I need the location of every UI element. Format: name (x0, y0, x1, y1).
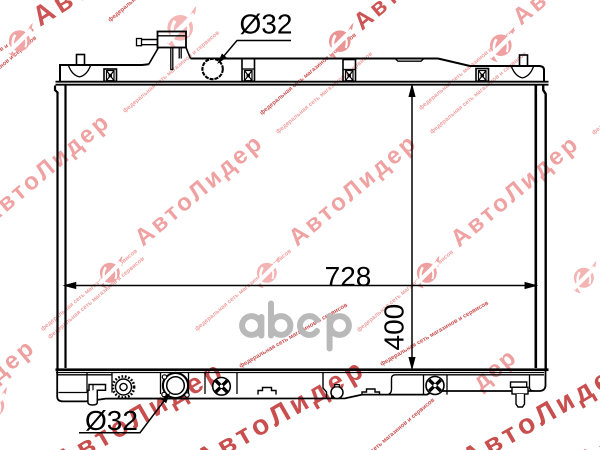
svg-text:Ø32: Ø32 (240, 9, 293, 40)
svg-text:728: 728 (325, 261, 372, 292)
svg-text:Ø32: Ø32 (85, 405, 138, 436)
svg-text:400: 400 (379, 304, 410, 351)
